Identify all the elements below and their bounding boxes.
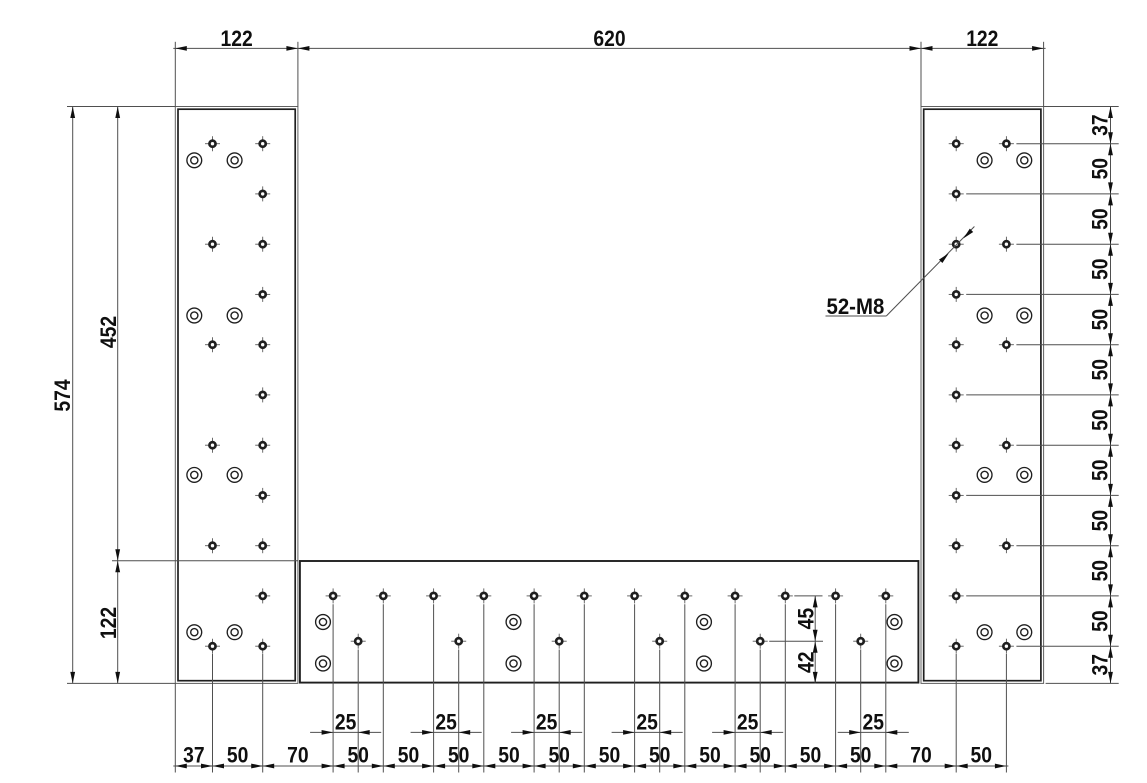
svg-text:50: 50 — [699, 743, 721, 768]
svg-text:50: 50 — [1088, 510, 1113, 532]
svg-text:37: 37 — [1088, 114, 1113, 136]
svg-text:50: 50 — [749, 743, 771, 768]
svg-text:37: 37 — [1088, 654, 1113, 676]
svg-text:50: 50 — [227, 743, 249, 768]
svg-text:50: 50 — [448, 743, 470, 768]
svg-text:25: 25 — [536, 710, 558, 735]
svg-text:50: 50 — [649, 743, 671, 768]
svg-text:50: 50 — [498, 743, 520, 768]
svg-text:25: 25 — [435, 710, 457, 735]
svg-text:45: 45 — [794, 608, 819, 630]
svg-text:50: 50 — [850, 743, 872, 768]
svg-text:50: 50 — [599, 743, 621, 768]
svg-text:122: 122 — [221, 26, 253, 51]
svg-text:50: 50 — [1088, 560, 1113, 582]
svg-text:50: 50 — [548, 743, 570, 768]
svg-text:25: 25 — [737, 710, 759, 735]
svg-text:620: 620 — [593, 26, 625, 51]
svg-text:50: 50 — [1088, 409, 1113, 431]
svg-text:37: 37 — [183, 743, 205, 768]
svg-text:50: 50 — [398, 743, 420, 768]
svg-text:50: 50 — [1088, 460, 1113, 482]
svg-text:452: 452 — [96, 316, 121, 348]
svg-text:25: 25 — [863, 710, 885, 735]
svg-text:50: 50 — [1088, 610, 1113, 632]
svg-text:25: 25 — [636, 710, 658, 735]
svg-text:70: 70 — [287, 743, 309, 768]
svg-text:70: 70 — [910, 743, 932, 768]
svg-text:50: 50 — [1088, 259, 1113, 281]
svg-text:50: 50 — [1088, 309, 1113, 331]
svg-text:50: 50 — [1088, 208, 1113, 230]
svg-text:25: 25 — [335, 710, 357, 735]
svg-text:574: 574 — [50, 379, 75, 412]
svg-text:50: 50 — [1088, 359, 1113, 381]
svg-text:50: 50 — [347, 743, 369, 768]
svg-text:52-M8: 52-M8 — [827, 294, 885, 319]
svg-text:122: 122 — [966, 26, 998, 51]
svg-text:50: 50 — [971, 743, 993, 768]
svg-text:50: 50 — [1088, 158, 1113, 180]
svg-text:122: 122 — [96, 607, 121, 639]
svg-text:42: 42 — [794, 652, 819, 674]
svg-text:50: 50 — [800, 743, 822, 768]
